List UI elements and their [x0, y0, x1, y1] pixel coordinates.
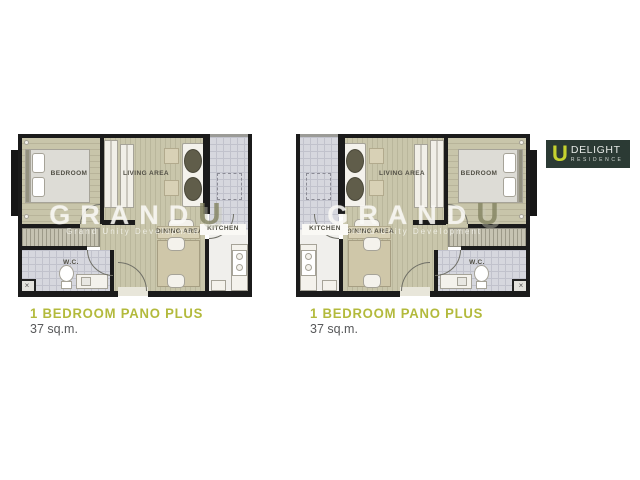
wall — [413, 220, 446, 225]
sofa-cushion — [346, 149, 364, 173]
downlight-icon — [519, 214, 524, 219]
stove-burner-icon — [236, 253, 243, 260]
kitchen-label: KITCHEN — [200, 226, 246, 233]
sink — [457, 277, 467, 286]
lounge-pillow — [369, 148, 384, 164]
wall — [468, 224, 530, 228]
wall — [203, 134, 210, 214]
toilet-tank — [61, 281, 72, 289]
logo-brand-text: DELIGHT — [571, 145, 624, 156]
shaft-cross-icon: × — [21, 282, 33, 290]
lounge-pillow — [164, 148, 179, 164]
sink — [81, 277, 91, 286]
page: { "logo": { "letter": "U", "brand": "DEL… — [0, 0, 640, 480]
wall — [461, 246, 530, 250]
kitchen-ledge — [209, 134, 252, 137]
wall — [248, 134, 252, 297]
floor-plan-canvas: × BEDROOM LIVING AREA DINING AREA KITCHE… — [296, 134, 530, 297]
logo-sub-brand-text: RESIDENCE — [571, 158, 624, 163]
floor-plan-canvas: × BEDROOM LIVING AREA DINING AREA KITCHE… — [18, 134, 252, 297]
corridor-closet — [21, 228, 100, 247]
kitchen-ledge — [296, 134, 339, 137]
plan-area: 37 sq.m. — [30, 322, 208, 336]
wall — [430, 291, 530, 297]
wc-label: W.C. — [54, 260, 88, 267]
kitchen-label: KITCHEN — [302, 226, 348, 233]
stove-burner-icon — [305, 253, 312, 260]
living-area-label: LIVING AREA — [370, 171, 434, 178]
bed-pillow — [32, 177, 45, 197]
sofa-cushion — [346, 177, 364, 201]
wall — [296, 134, 300, 297]
bed-pillow — [32, 153, 45, 173]
lounge-pillow — [164, 180, 179, 196]
lounge-pillow — [369, 180, 384, 196]
appliance-space — [306, 173, 331, 200]
wall — [148, 291, 252, 297]
plan-area: 37 sq.m. — [310, 322, 488, 336]
brand-logo: U DELIGHT RESIDENCE — [546, 140, 630, 168]
logo-u-letter: U — [552, 144, 568, 164]
floor-plan-left: × BEDROOM LIVING AREA DINING AREA KITCHE… — [18, 134, 252, 297]
wall — [18, 246, 87, 250]
corridor-closet — [448, 228, 527, 247]
vanity-counter — [440, 274, 472, 289]
dining-chair — [167, 237, 185, 251]
dining-chair — [167, 274, 185, 288]
wc-label: W.C. — [460, 260, 494, 267]
wall — [526, 134, 530, 297]
bedroom-window — [529, 150, 537, 216]
wall — [18, 291, 118, 297]
wall — [339, 239, 343, 291]
living-area-label: LIVING AREA — [114, 171, 178, 178]
stove-burner-icon — [305, 264, 312, 271]
caption-right: 1 BEDROOM PANO PLUS 37 sq.m. — [310, 306, 488, 336]
wall — [338, 134, 345, 214]
wall — [205, 239, 209, 291]
downlight-icon — [24, 140, 29, 145]
bedroom-label: BEDROOM — [38, 171, 100, 178]
dining-chair — [363, 237, 381, 251]
bed-pillow — [503, 153, 516, 173]
sofa-cushion — [184, 177, 202, 201]
wall — [18, 224, 80, 228]
downlight-icon — [519, 140, 524, 145]
dining-area-label: DINING AREA — [156, 229, 201, 236]
wall — [296, 291, 400, 297]
toilet-bowl — [474, 265, 489, 282]
bed-headboard — [518, 149, 523, 203]
wall — [100, 134, 104, 224]
dining-chair — [363, 274, 381, 288]
sofa-cushion — [184, 149, 202, 173]
appliance-space — [217, 173, 242, 200]
wall — [102, 220, 135, 225]
downlight-icon — [24, 214, 29, 219]
wall — [18, 134, 22, 297]
floor-plan-right: × BEDROOM LIVING AREA DINING AREA KITCHE… — [296, 134, 530, 297]
bed-pillow — [503, 177, 516, 197]
wall — [18, 134, 209, 138]
caption-left: 1 BEDROOM PANO PLUS 37 sq.m. — [30, 306, 208, 336]
plan-title: 1 BEDROOM PANO PLUS — [310, 306, 483, 321]
wall — [339, 134, 530, 138]
bedroom-label: BEDROOM — [448, 171, 510, 178]
water-heater — [322, 280, 337, 291]
plan-title: 1 BEDROOM PANO PLUS — [30, 306, 203, 321]
toilet-bowl — [59, 265, 74, 282]
water-heater — [211, 280, 226, 291]
stove-burner-icon — [236, 264, 243, 271]
toilet-tank — [476, 281, 487, 289]
dining-area-label: DINING AREA — [347, 229, 392, 236]
